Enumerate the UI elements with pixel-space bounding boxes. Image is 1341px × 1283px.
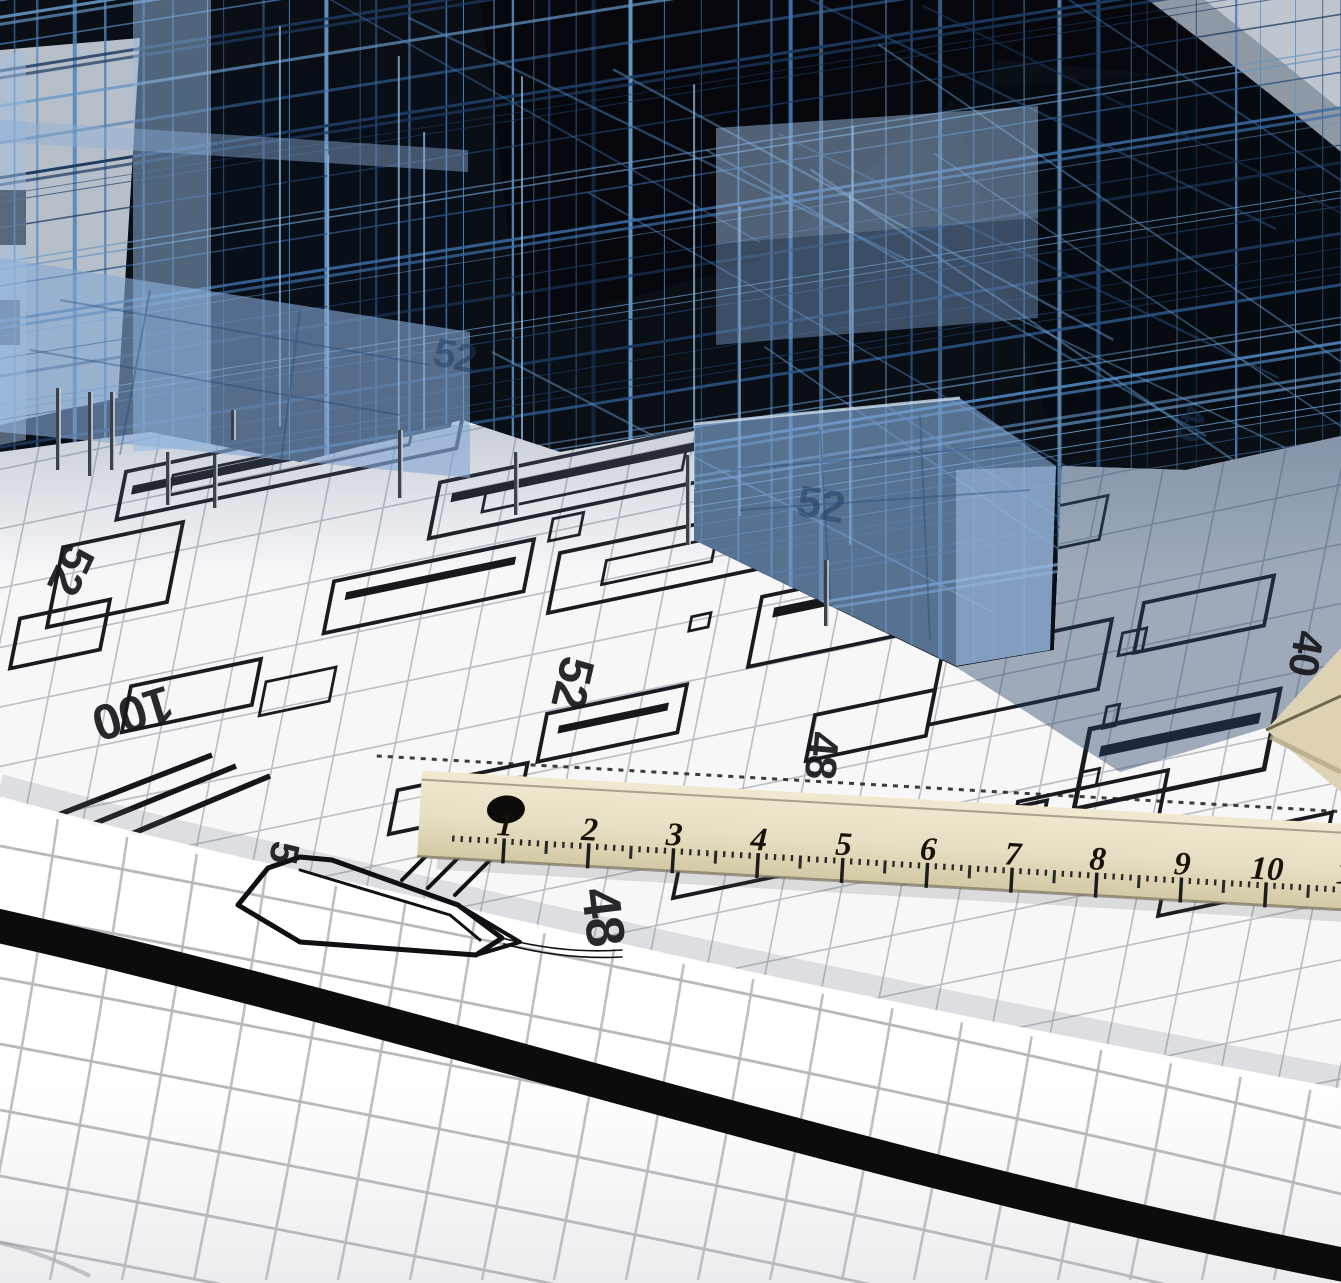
ruler-tick-minor bbox=[631, 846, 632, 859]
ruler-tick-minor bbox=[1223, 880, 1224, 893]
ruler-tick-major bbox=[926, 863, 927, 888]
scene-canvas: 525240 52100524840548 1234567891011 bbox=[0, 0, 1341, 1283]
ruler-number: 9 bbox=[1173, 846, 1192, 883]
ruler-tick-minor bbox=[546, 841, 547, 854]
ruler-tick-major bbox=[757, 853, 758, 878]
plan-annotation: 48 bbox=[570, 884, 637, 949]
ghost-annotation: 52 bbox=[429, 330, 480, 382]
ruler-number: 6 bbox=[919, 831, 938, 868]
glass-panel bbox=[956, 466, 1056, 666]
ruler-tick-major bbox=[672, 848, 673, 873]
ruler-number: 4 bbox=[749, 822, 769, 859]
ruler-tick-minor bbox=[1138, 875, 1139, 888]
ruler-tick-major bbox=[1180, 878, 1181, 903]
ruler-tick-minor bbox=[969, 865, 970, 878]
ruler-tick-minor bbox=[715, 851, 716, 864]
ruler-tick-major bbox=[1011, 868, 1012, 893]
blueprint-photo: 525240 52100524840548 1234567891011 bbox=[0, 0, 1341, 1283]
glass-panel bbox=[133, 0, 211, 452]
ruler-number: 11 bbox=[1335, 855, 1341, 893]
ruler-tick-major bbox=[1265, 882, 1266, 907]
ruler-tick-minor bbox=[884, 860, 885, 873]
ruler-tick-major bbox=[841, 858, 842, 883]
ruler-number: 2 bbox=[579, 812, 599, 849]
ruler-tick-minor bbox=[1308, 885, 1309, 898]
ruler-tick-major bbox=[503, 838, 504, 863]
glass-panel bbox=[0, 52, 26, 445]
ruler-number: 8 bbox=[1088, 841, 1107, 878]
ghost-annotation: 52 bbox=[793, 477, 848, 533]
ruler-number: 3 bbox=[664, 817, 684, 854]
ruler-tick-major bbox=[587, 843, 588, 868]
ruler-number: 1 bbox=[496, 807, 515, 844]
ruler-tick-minor bbox=[800, 856, 801, 869]
ruler-tick-minor bbox=[1054, 870, 1055, 883]
ruler-number: 5 bbox=[834, 827, 853, 864]
plan-annotation: 48 bbox=[795, 730, 848, 782]
ruler-tick-major bbox=[1095, 873, 1096, 898]
